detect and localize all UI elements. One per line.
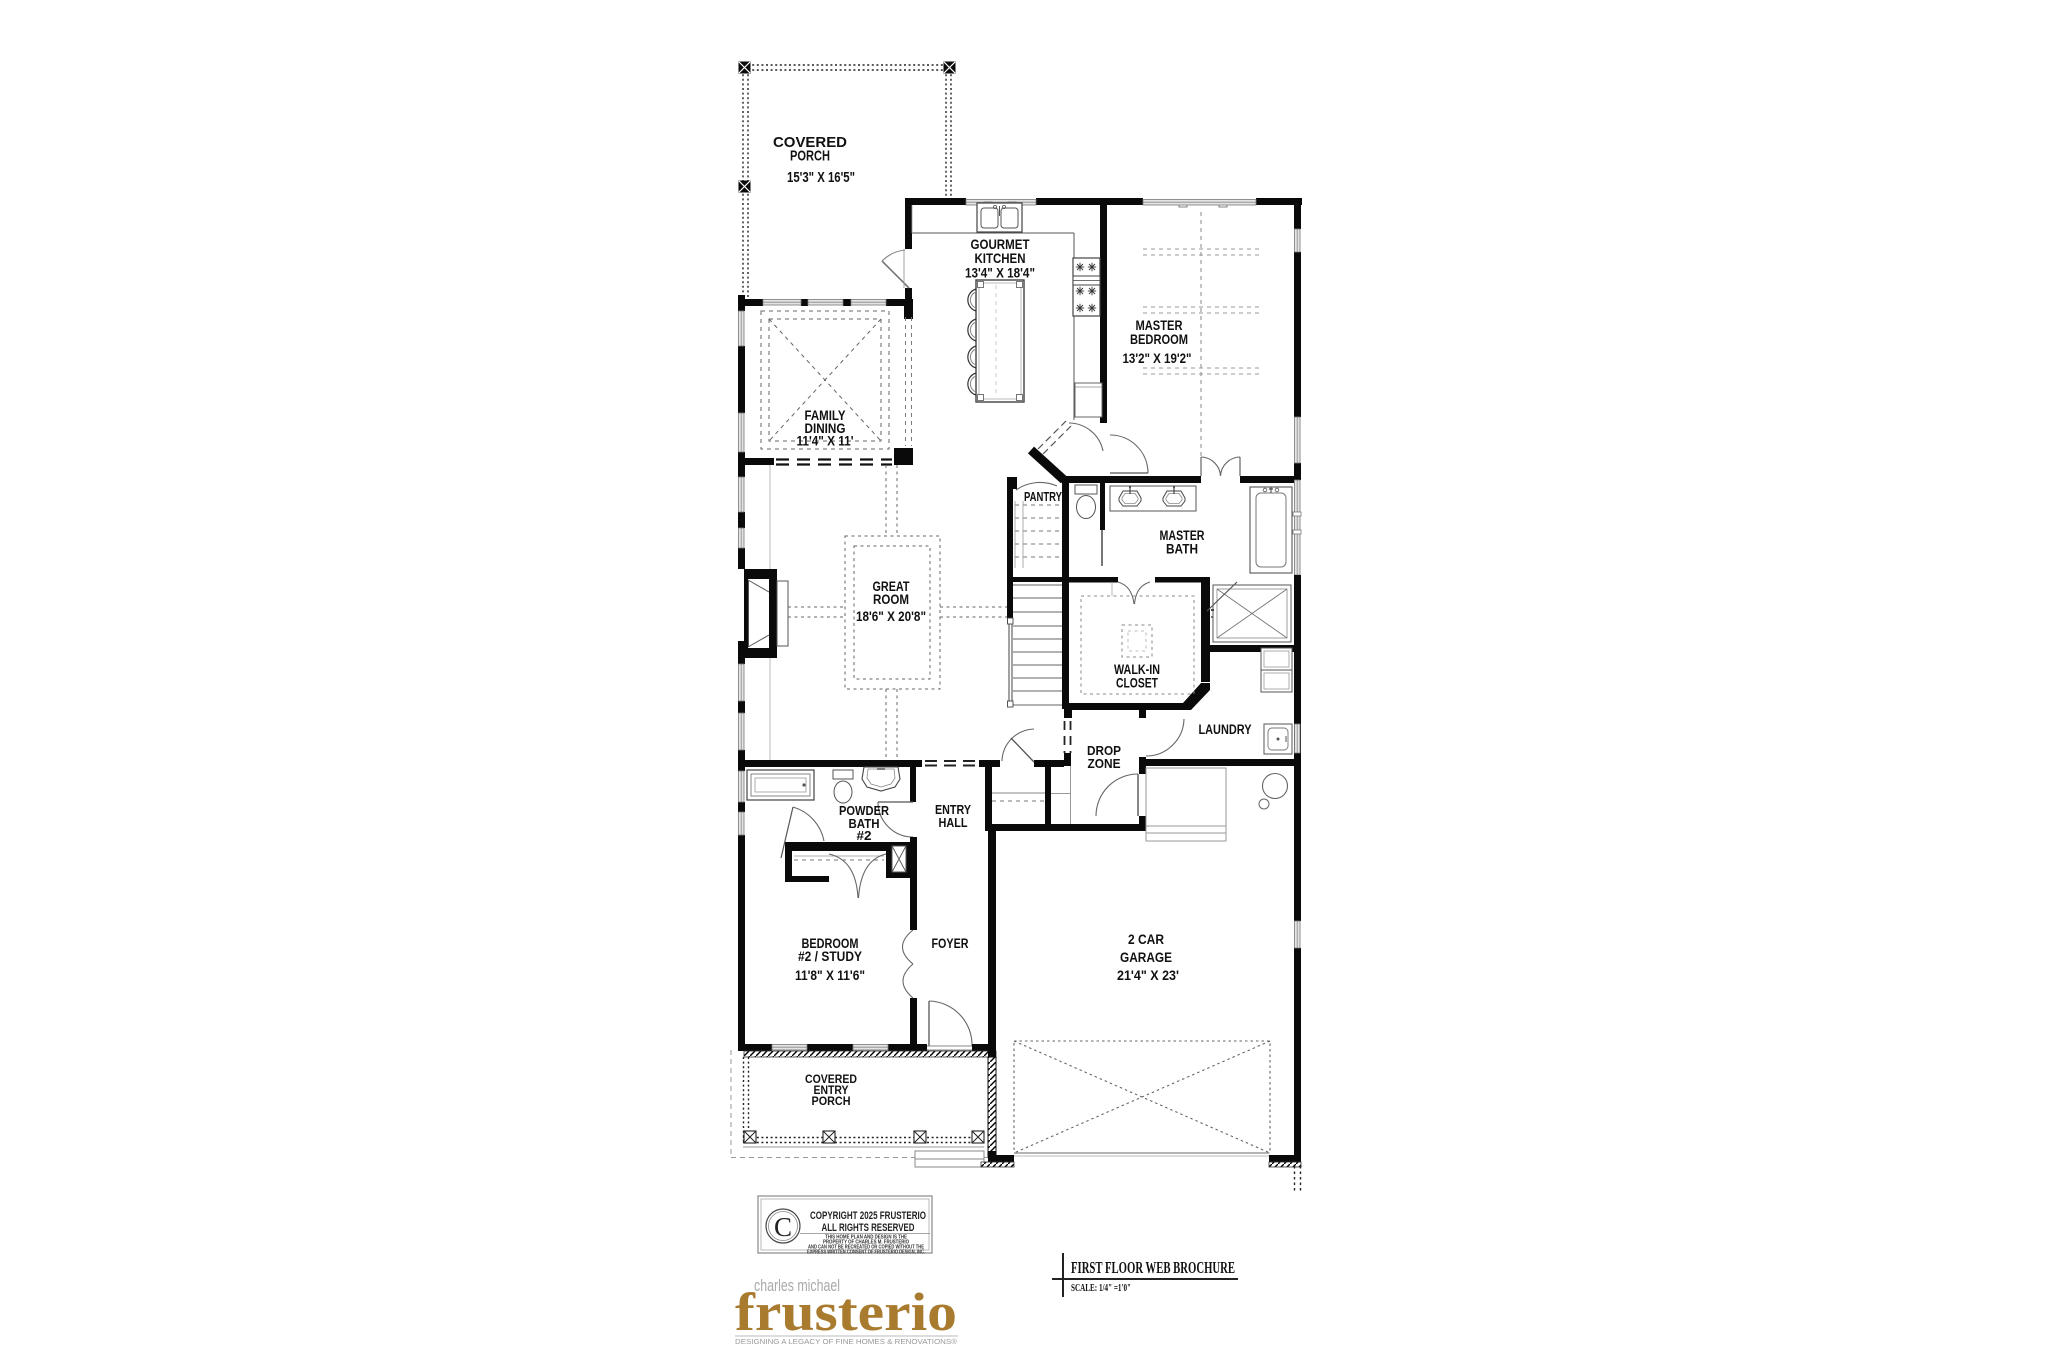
svg-text:BEDROOM: BEDROOM — [1130, 332, 1188, 347]
svg-text:13'4" X 18'4": 13'4" X 18'4" — [965, 265, 1035, 281]
svg-text:ZONE: ZONE — [1088, 757, 1121, 771]
svg-text:PORCH: PORCH — [812, 1094, 851, 1108]
svg-text:21'4" X 23': 21'4" X 23' — [1117, 967, 1179, 983]
svg-text:GOURMET: GOURMET — [971, 237, 1031, 252]
svg-text:ENTRY: ENTRY — [935, 803, 972, 817]
svg-text:FOYER: FOYER — [932, 936, 969, 951]
svg-text:BATH: BATH — [1166, 542, 1198, 557]
svg-text:11'8" X 11'6": 11'8" X 11'6" — [795, 967, 865, 983]
svg-text:SCALE: 1/4" =1'0": SCALE: 1/4" =1'0" — [1071, 1283, 1131, 1294]
svg-text:#2: #2 — [857, 829, 872, 843]
svg-text:15'3" X 16'5": 15'3" X 16'5" — [787, 170, 855, 186]
svg-text:FIRST FLOOR WEB BROCHURE: FIRST FLOOR WEB BROCHURE — [1071, 1258, 1235, 1277]
svg-text:LAUNDRY: LAUNDRY — [1199, 722, 1252, 737]
svg-text:18'6" X 20'8": 18'6" X 20'8" — [856, 608, 926, 624]
svg-text:HALL: HALL — [939, 816, 968, 830]
svg-text:PORCH: PORCH — [790, 148, 830, 165]
svg-text:DROP: DROP — [1087, 744, 1121, 758]
svg-text:EXPRESS WRITTEN CONSENT OF FRU: EXPRESS WRITTEN CONSENT OF FRUSTERIO DES… — [807, 1250, 925, 1256]
svg-text:POWDER: POWDER — [839, 804, 889, 818]
svg-text:DESIGNING A LEGACY OF FINE HOM: DESIGNING A LEGACY OF FINE HOMES & RENOV… — [735, 1337, 957, 1346]
svg-text:PANTRY: PANTRY — [1024, 490, 1063, 504]
svg-text:ALL RIGHTS RESERVED: ALL RIGHTS RESERVED — [822, 1222, 915, 1234]
svg-text:COPYRIGHT 2025 FRUSTERIO: COPYRIGHT 2025 FRUSTERIO — [810, 1210, 926, 1222]
svg-text:MASTER: MASTER — [1136, 318, 1183, 333]
svg-text:13'2" X 19'2": 13'2" X 19'2" — [1123, 350, 1192, 366]
svg-text:2 CAR: 2 CAR — [1128, 932, 1164, 947]
svg-text:#2 / STUDY: #2 / STUDY — [798, 949, 862, 964]
svg-text:frusterio: frusterio — [735, 1282, 957, 1342]
svg-text:ROOM: ROOM — [873, 592, 909, 607]
svg-text:GARAGE: GARAGE — [1120, 950, 1172, 965]
svg-text:C: C — [774, 1212, 792, 1242]
svg-text:11'4" X 11': 11'4" X 11' — [797, 433, 854, 449]
svg-text:CLOSET: CLOSET — [1116, 676, 1159, 691]
